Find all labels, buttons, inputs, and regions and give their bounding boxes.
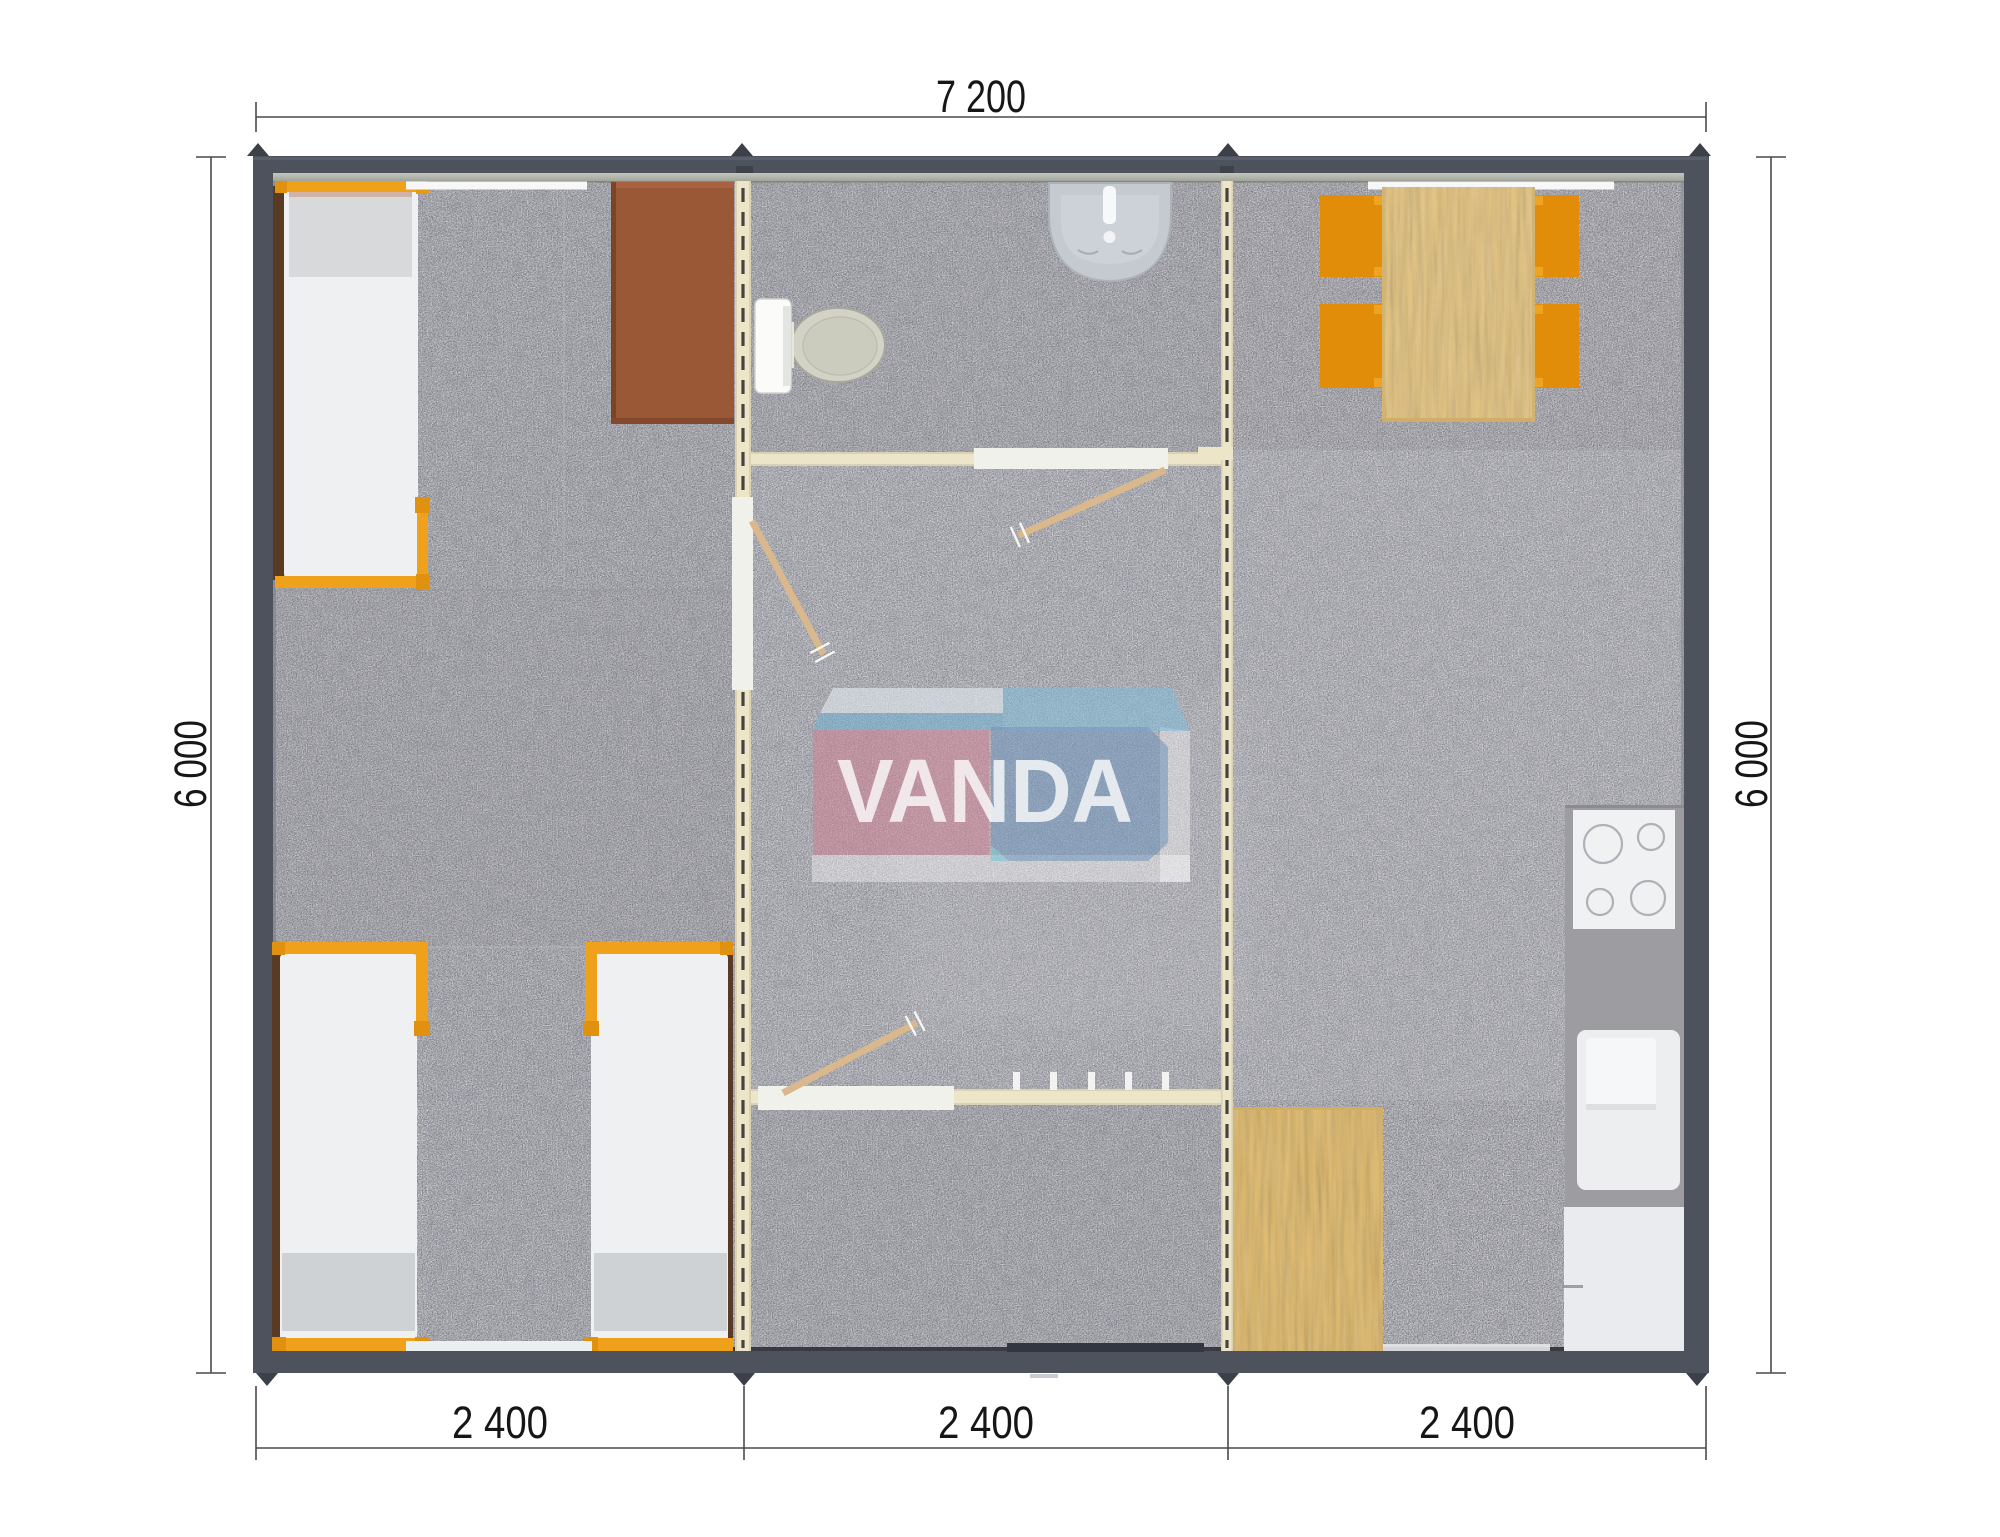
svg-text:VANDA: VANDA [837, 742, 1133, 842]
svg-text:2 400: 2 400 [938, 1397, 1034, 1448]
svg-text:6 000: 6 000 [165, 720, 216, 808]
svg-text:6 000: 6 000 [1726, 720, 1777, 808]
svg-text:7 200: 7 200 [936, 71, 1026, 122]
svg-text:2 400: 2 400 [452, 1397, 548, 1448]
svg-text:2 400: 2 400 [1419, 1397, 1515, 1448]
